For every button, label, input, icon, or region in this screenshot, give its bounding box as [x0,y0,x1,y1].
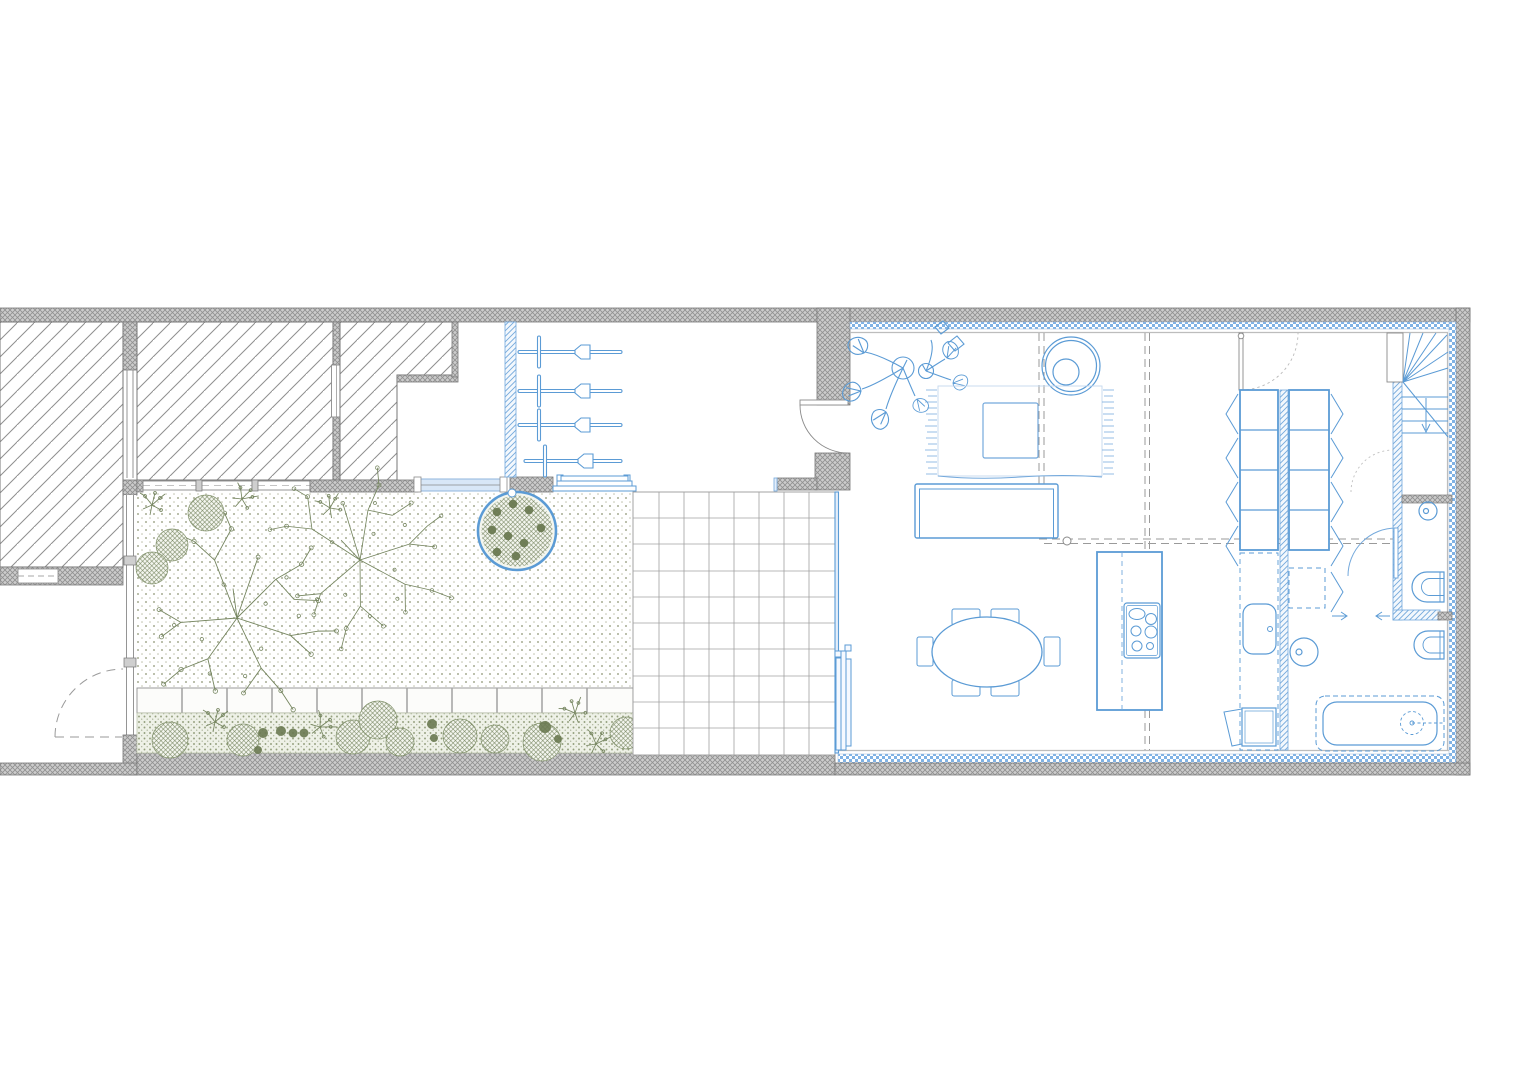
garden-north-window-new [414,477,507,492]
garden-west-window [124,495,136,735]
wall-plant-4 [524,445,622,477]
wc-basin [1419,502,1437,520]
party-wall-mid-bottom [815,453,850,490]
room1-north-wall [397,375,458,382]
garden-north-wall-solid [310,480,418,492]
wall-stub [123,322,137,370]
right-wall-gray [1456,308,1470,775]
neighbor-block-east [340,322,453,480]
patio-tile-grid [633,492,835,755]
party-wall-ext [777,478,817,490]
hall-dotted-arc [1351,450,1393,492]
party-wall-top [0,308,1470,322]
bathtub [1316,696,1444,751]
wall-plant-1 [518,336,622,368]
bath-north-wall-gray [1438,612,1452,620]
window-neighbor-west [18,569,58,583]
neighbor-block-mid [137,322,333,480]
new-blue-wall [505,322,516,477]
kitchen-counter [1224,553,1278,750]
dishwasher [1242,708,1276,746]
wall-plant-3 [518,409,622,441]
sofa [915,484,1058,538]
garden-steps [553,475,636,491]
porch-door-dashed [55,669,123,737]
hall-east-wall [1393,380,1402,620]
wall-plants [518,336,622,477]
entry-door [1238,333,1298,390]
south-wall-right [835,763,1470,775]
bath-north-wall-blue [1393,610,1440,620]
column-marker [1063,537,1071,545]
stair-arrow [1422,398,1430,432]
insulation-bottom [838,754,1450,763]
bathroom-toilet [1414,631,1444,659]
kitchen-island [1097,552,1162,710]
wall-block-under-bluewall [510,477,553,492]
wc-toilet [1412,572,1444,602]
south-wall-garden [137,753,835,775]
floor-plan-drawing [0,0,1536,1086]
party-wall-door [800,400,848,453]
wall-plant-2 [518,375,622,407]
appliance-door-open [1224,709,1242,746]
monstera-plant [842,321,968,432]
wc-door [1348,528,1398,578]
floor-plan-canvas [0,0,1536,1086]
stair-newel [1387,333,1403,382]
garden-west-wall-top [123,480,137,495]
bathroom-basin [1290,638,1318,666]
insulation-right [1449,322,1456,763]
kitchen-sink [1243,604,1276,654]
room1-corner-wall [452,322,458,377]
opening-arrows [1332,612,1390,620]
party-wall-mid-top [817,308,850,405]
dining-table [932,617,1042,687]
neighbor-block-west [0,322,123,567]
wardrobe-divider-wall [1280,390,1288,750]
patio-window-frame [774,478,777,491]
sliding-glass-door [835,645,851,750]
garden-window-row [137,480,310,492]
pouf [983,403,1038,458]
right-unit-interior [842,321,1452,751]
south-wall-porch [0,763,137,775]
window-stub [127,370,133,478]
